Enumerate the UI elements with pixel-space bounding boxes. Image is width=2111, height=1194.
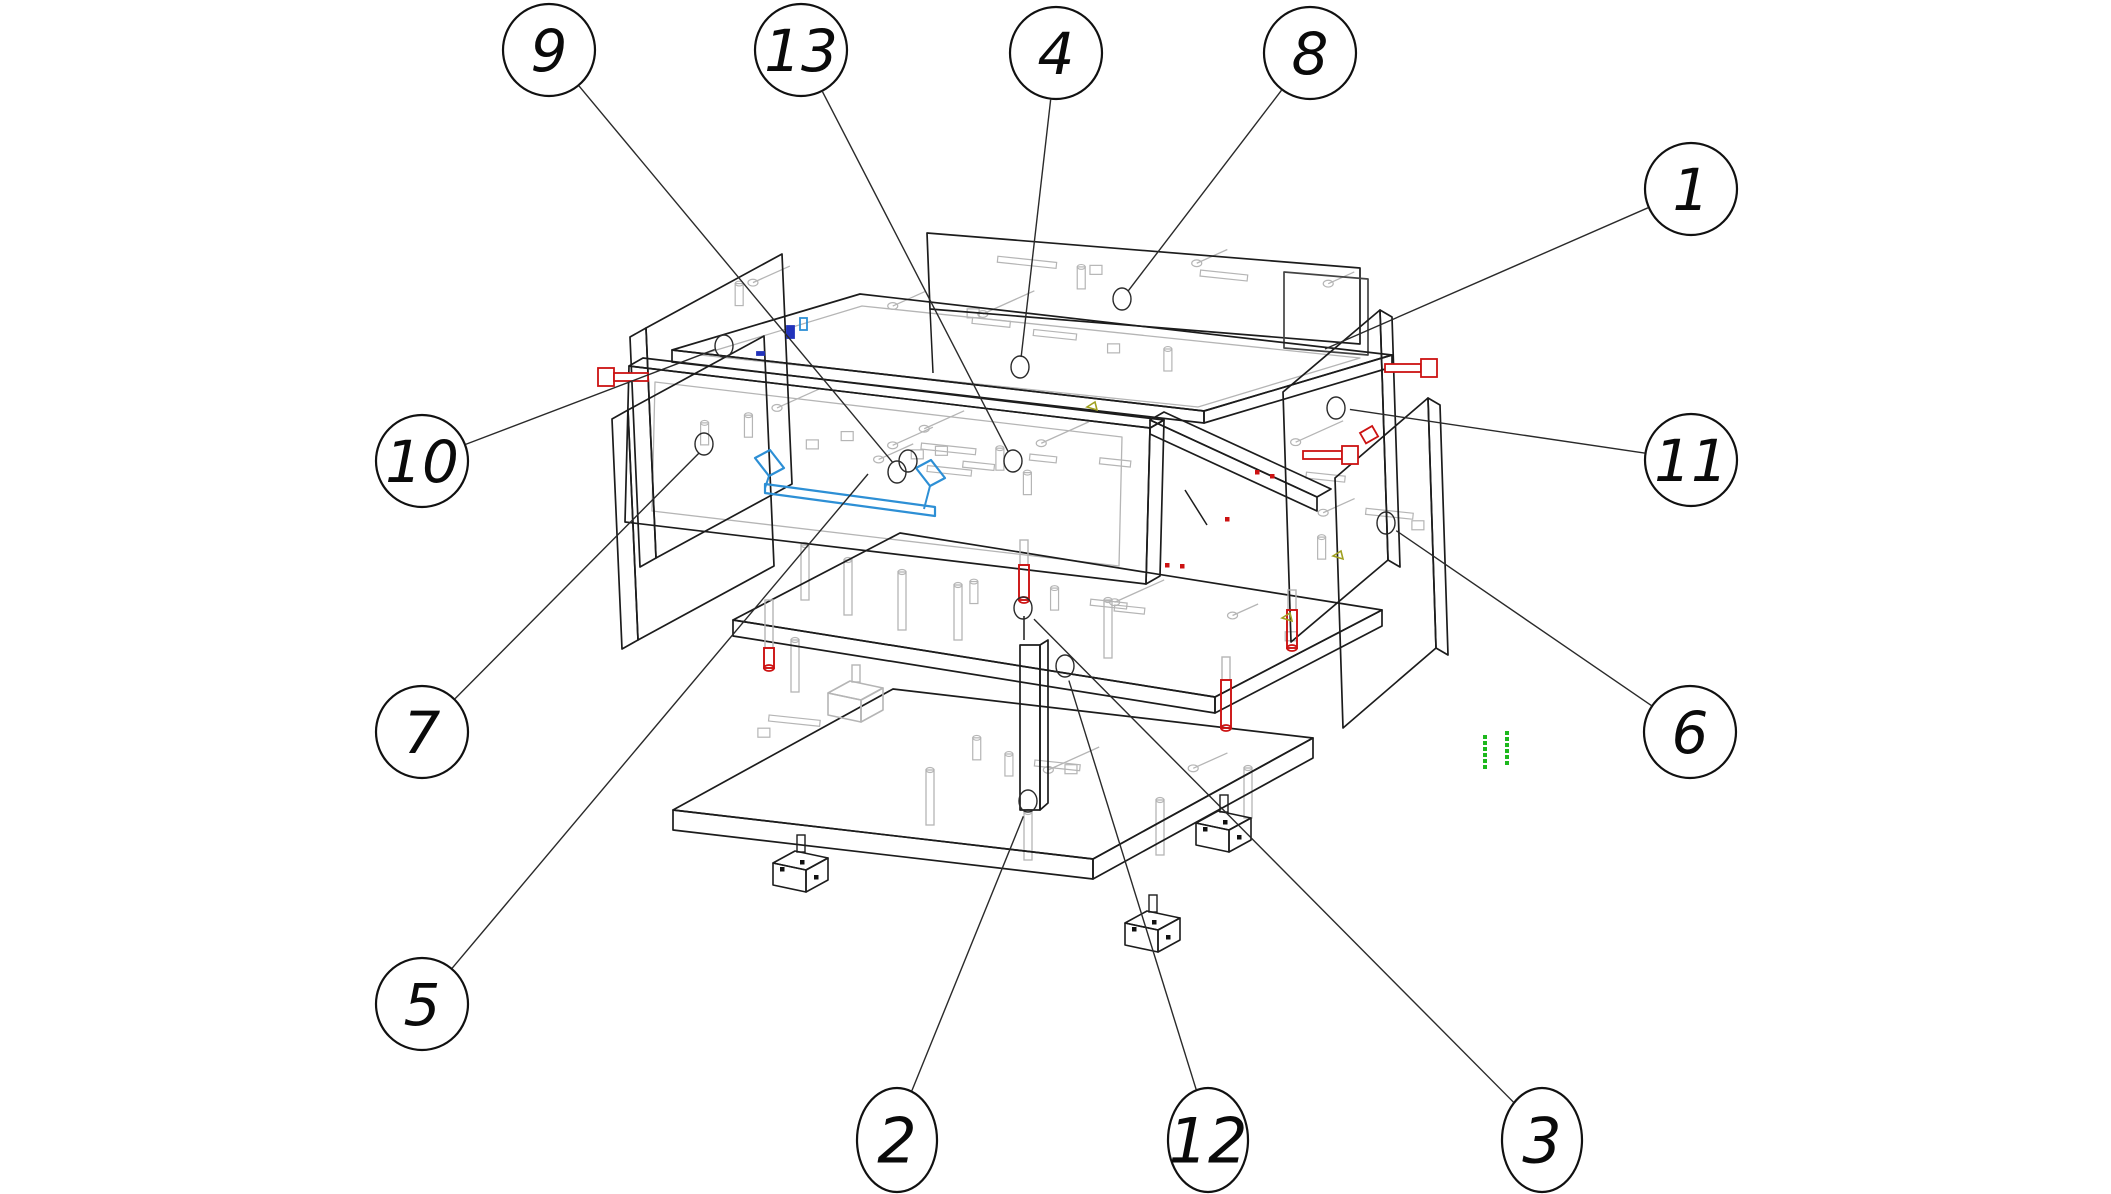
detail-dowel-icon: [921, 443, 976, 455]
balloon-11[interactable]: 11: [1645, 414, 1737, 506]
red-dot-icon: [1225, 517, 1230, 522]
balloon-number-4: 4: [1038, 20, 1075, 88]
green-dot-icon: [1483, 753, 1487, 757]
panel-divider-side: [1040, 640, 1048, 810]
detail-hanging-pin-icon: [898, 572, 906, 630]
panel-right-panel-a: [1283, 310, 1388, 642]
olive-mark-icon: [1087, 402, 1097, 410]
foot-dot-icon: [1152, 920, 1157, 925]
green-dot-icon: [1505, 755, 1509, 759]
balloon-5[interactable]: 5: [376, 958, 468, 1050]
balloon-number-1: 1: [1673, 156, 1710, 224]
panel-drawer-front: [625, 366, 1150, 584]
balloon-number-10: 10: [385, 428, 459, 496]
detail-peg-icon: [970, 582, 978, 604]
detail-dowel-icon: [997, 256, 1056, 268]
drawer-front-inset: [652, 382, 1122, 566]
blue-drawer-rail: [765, 484, 935, 516]
balloon-8[interactable]: 8: [1264, 7, 1356, 99]
balloon-7[interactable]: 7: [376, 686, 468, 778]
balloon-number-7: 7: [404, 699, 441, 767]
panel-shelf-side: [1215, 610, 1382, 713]
panel-left-panel-inner: [628, 336, 774, 640]
green-dot-icon: [1483, 765, 1487, 769]
leader-line-2: [912, 816, 1023, 1090]
balloon-number-3: 3: [1522, 1104, 1561, 1177]
leader-line-8: [1128, 90, 1281, 291]
detail-block-icon: [1090, 265, 1102, 274]
detail-peg-icon: [1077, 267, 1085, 289]
panel-edge: [930, 309, 933, 373]
balloon-number-9: 9: [531, 17, 568, 85]
detail-peg-icon: [1164, 349, 1172, 371]
foot-front: [1125, 923, 1158, 952]
detail-block-icon: [806, 440, 818, 449]
balloon-12[interactable]: 12: [1168, 1088, 1248, 1192]
detail-peg-icon: [1051, 588, 1059, 610]
hole-drawer-a: [899, 450, 917, 472]
red-dot-icon: [1255, 470, 1260, 475]
leader-line-9: [579, 86, 893, 462]
panel-drawer-front-side: [1146, 420, 1164, 584]
balloon-number-13: 13: [764, 17, 838, 85]
detail-screw-icon: [1296, 421, 1344, 442]
hole-drawer-c: [1004, 450, 1022, 472]
green-dot-icon: [1483, 747, 1487, 751]
balloon-number-8: 8: [1292, 20, 1329, 88]
red-clip-icon: [1360, 426, 1378, 443]
detail-block-icon: [841, 432, 853, 441]
panel-divider-front: [1020, 645, 1040, 810]
red-bolt-shaft-icon: [1303, 451, 1342, 459]
foot-dot-icon: [1166, 935, 1171, 940]
detail-dowel-icon: [1029, 454, 1056, 463]
detail-hanging-pin-icon: [844, 560, 852, 615]
green-dot-icon: [1505, 737, 1509, 741]
detail-screw-icon: [1048, 747, 1099, 770]
pin-upper-grey-icon: [1222, 657, 1230, 680]
balloon-number-2: 2: [877, 1104, 916, 1177]
green-dot-icon: [1483, 741, 1487, 745]
green-dot-icon: [1505, 731, 1509, 735]
detail-peg-icon: [996, 448, 1004, 470]
panel-base-side: [1093, 738, 1313, 879]
detail-dowel-icon: [1099, 458, 1130, 467]
foot-pin-icon: [797, 835, 805, 852]
detail-screw-icon: [777, 388, 821, 408]
green-dot-icon: [1505, 749, 1509, 753]
foot-pin-icon: [1149, 895, 1157, 912]
pin-lower-red-icon: [1221, 680, 1231, 728]
balloon-number-5: 5: [404, 971, 441, 1039]
leader-line-3: [1034, 619, 1513, 1102]
detail-peg-icon: [1005, 754, 1013, 776]
green-dot-icon: [1483, 759, 1487, 763]
detail-dowel-icon: [1033, 330, 1076, 340]
foot-front: [773, 863, 806, 892]
detail-dowel-icon: [1114, 605, 1145, 614]
detail-dowel-icon: [963, 461, 995, 470]
red-dot-icon: [1270, 474, 1275, 479]
foot-dot-icon: [1203, 827, 1208, 832]
assembly-drawing-canvas[interactable]: 91348110117652123: [0, 0, 2111, 1194]
detail-hanging-pin-icon: [954, 585, 962, 640]
detail-block-icon: [758, 728, 770, 737]
red-bolt-head-icon: [1342, 446, 1358, 464]
panel-right-panel-a-edge: [1380, 310, 1400, 567]
foot-dot-icon: [1132, 927, 1137, 932]
detail-peg-icon: [735, 284, 743, 306]
foot-dot-icon: [1223, 820, 1228, 825]
balloon-number-12: 12: [1169, 1104, 1248, 1177]
detail-peg-icon: [744, 415, 752, 437]
detail-dowel-icon: [1366, 508, 1414, 519]
balloon-10[interactable]: 10: [376, 415, 468, 507]
detail-peg-icon: [973, 738, 981, 760]
red-bolt-head-icon: [598, 368, 614, 386]
detail-screw-icon: [1193, 753, 1227, 768]
blue-rail-connector: [765, 476, 769, 488]
hole-lid: [1011, 356, 1029, 378]
detail-hanging-pin-icon: [1156, 800, 1164, 855]
panel-top-panel-tip: [1204, 355, 1392, 423]
detail-block-icon: [1412, 521, 1424, 530]
panel-base-front: [673, 810, 1093, 879]
panel-back-panel-echo: [1284, 272, 1368, 355]
leader-line-12: [1069, 681, 1196, 1090]
foot-front: [1196, 823, 1229, 852]
detail-hanging-pin-icon: [1104, 600, 1112, 658]
detail-dowel-icon: [769, 715, 821, 726]
red-bolt-shaft-icon: [1385, 364, 1421, 372]
panel-drawer-front-top: [629, 358, 1164, 428]
foot-top: [828, 681, 883, 700]
green-dot-icon: [1483, 735, 1487, 739]
foot-dot-icon: [1237, 835, 1242, 840]
panel-side-rail-front: [1150, 420, 1317, 511]
balloon-1[interactable]: 1: [1645, 143, 1737, 235]
balloon-number-11: 11: [1654, 427, 1728, 495]
red-dot-icon: [1165, 563, 1170, 568]
foot-pin-icon: [852, 665, 860, 682]
foot-dot-icon: [800, 860, 805, 865]
green-dot-icon: [1505, 761, 1509, 765]
balloon-2[interactable]: 2: [857, 1088, 937, 1192]
detail-peg-icon: [1318, 537, 1326, 559]
leader-line-1: [1325, 208, 1648, 349]
balloon-13[interactable]: 13: [755, 4, 847, 96]
detail-hanging-pin-icon: [926, 770, 934, 825]
detail-screw-icon: [924, 411, 964, 429]
blue-clip-icon: [757, 352, 764, 355]
panel-edge: [1185, 490, 1207, 525]
balloon-6[interactable]: 6: [1644, 686, 1736, 778]
detail-screw-icon: [893, 427, 933, 445]
assembly-diagram-page: 91348110117652123: [0, 0, 2111, 1194]
detail-dowel-icon: [1200, 270, 1248, 281]
balloon-9[interactable]: 9: [503, 4, 595, 96]
leader-line-7: [455, 453, 699, 699]
hole-drawer-b: [888, 461, 906, 483]
foot-dot-icon: [814, 875, 819, 880]
detail-block-icon: [1108, 344, 1120, 353]
hole-left-bottom: [695, 433, 713, 455]
foot-front: [828, 693, 861, 722]
balloon-3[interactable]: 3: [1502, 1088, 1582, 1192]
leader-line-11: [1350, 409, 1645, 453]
hole-back: [1113, 288, 1131, 310]
red-bolt-head-icon: [1421, 359, 1437, 377]
detail-screw-icon: [753, 266, 790, 283]
balloon-4[interactable]: 4: [1010, 7, 1102, 99]
panel-right-panel-b-edge: [1428, 398, 1448, 655]
foot-dot-icon: [780, 867, 785, 872]
pin-lower-red-icon: [1287, 610, 1297, 648]
balloon-number-6: 6: [1672, 699, 1709, 767]
hole-right-a: [1327, 397, 1345, 419]
blue-rail-bracket-right: [916, 460, 945, 486]
detail-hanging-pin-icon: [791, 640, 799, 692]
detail-peg-icon: [1023, 473, 1031, 495]
detail-hanging-pin-icon: [1024, 812, 1032, 860]
leader-line-5: [452, 474, 868, 968]
leader-line-13: [823, 92, 1009, 452]
detail-dowel-icon: [1090, 599, 1127, 609]
hole-base: [1019, 790, 1037, 812]
green-dot-icon: [1505, 743, 1509, 747]
red-dot-icon: [1180, 564, 1185, 569]
leader-line-10: [466, 350, 715, 445]
